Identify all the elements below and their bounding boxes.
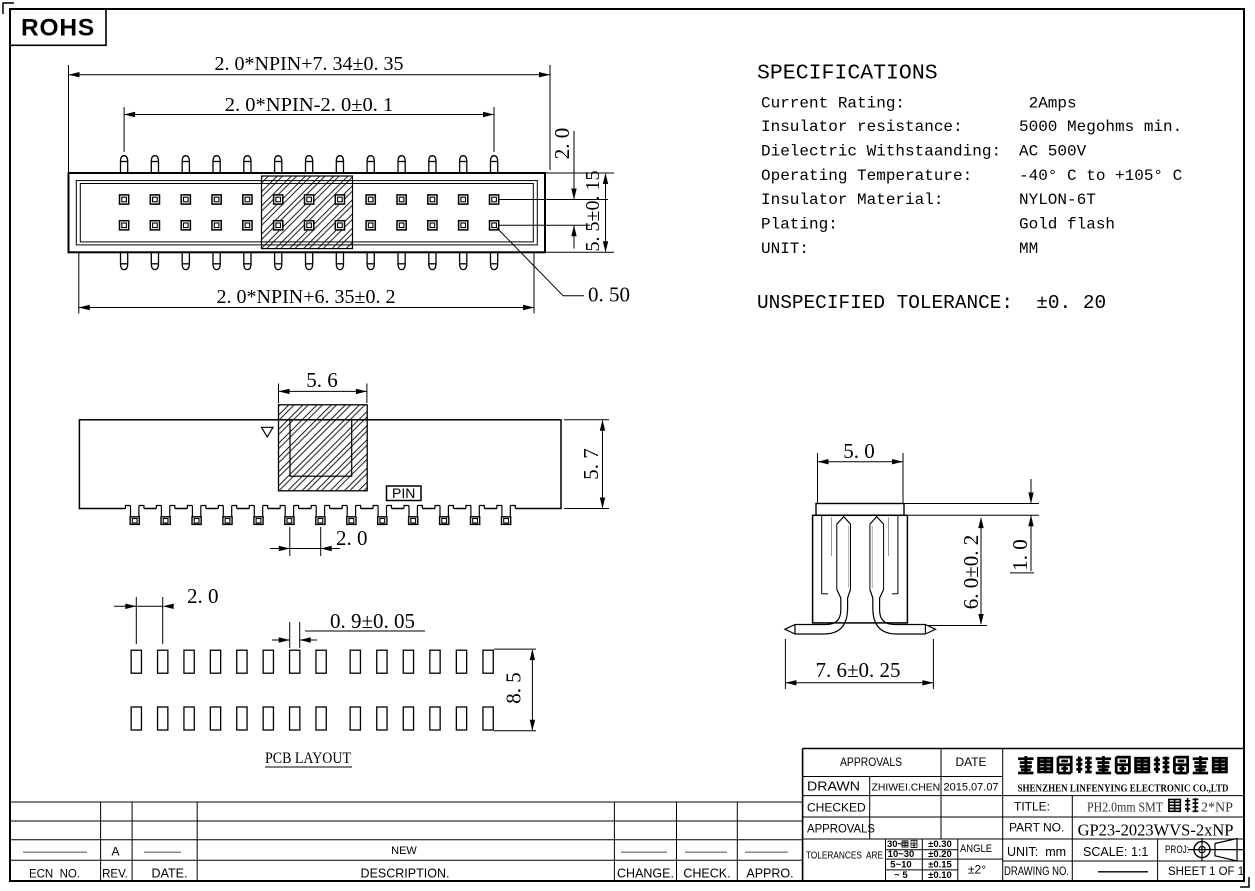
svg-text:1. 0: 1. 0 [1008,539,1032,571]
svg-text:5000 Megohms min.: 5000 Megohms min. [1019,118,1182,136]
svg-text:DATE.: DATE. [152,867,188,881]
svg-text:Dielectric Withstaanding:: Dielectric Withstaanding: [761,142,1001,160]
svg-text:6. 0±0. 2: 6. 0±0. 2 [959,535,983,610]
svg-text:DATE: DATE [955,755,986,769]
svg-text:5. 5±0. 15: 5. 5±0. 15 [582,171,604,252]
svg-text:CHANGE.: CHANGE. [617,867,674,881]
svg-text:5. 6: 5. 6 [306,368,338,392]
svg-text:CHECKED: CHECKED [807,801,866,815]
svg-text:2. 0: 2. 0 [336,526,368,550]
svg-text:-40° C to +105° C: -40° C to +105° C [1019,167,1182,185]
svg-text:ANGLE: ANGLE [960,843,992,855]
svg-text:GP23-2023WVS-2xNP: GP23-2023WVS-2xNP [1078,821,1234,840]
svg-text:0. 50: 0. 50 [588,283,630,307]
svg-text:±0.10: ±0.10 [928,870,952,881]
svg-text:NEW: NEW [391,845,417,857]
svg-text:TITLE:: TITLE: [1014,800,1050,814]
svg-text:APPROVALS: APPROVALS [807,822,875,836]
svg-text:Gold flash: Gold flash [1019,216,1115,234]
svg-text:2. 0*NPIN-2. 0±0. 1: 2. 0*NPIN-2. 0±0. 1 [225,94,393,116]
svg-text:ZHIWEI.CHEN: ZHIWEI.CHEN [872,783,941,794]
svg-text:2*NP: 2*NP [1201,801,1233,816]
svg-text:APPROVALS: APPROVALS [840,755,902,769]
svg-text:5~10: 5~10 [890,860,911,871]
svg-text:5. 0: 5. 0 [843,439,875,463]
svg-text:8. 5: 8. 5 [502,672,526,704]
svg-text:10~30: 10~30 [888,849,915,860]
svg-text:1 OF 1: 1 OF 1 [1209,866,1244,878]
svg-text:Insulator resistance:: Insulator resistance: [761,118,963,136]
svg-text:~ 5: ~ 5 [894,870,908,881]
svg-text:UNIT: mm: UNIT: mm [1007,845,1066,859]
svg-text:SHENZHEN LINFENYING ELECTRONIC: SHENZHEN LINFENYING ELECTRONIC CO.,LTD [1018,783,1229,795]
svg-text:2. 0*NPIN+7. 34±0. 35: 2. 0*NPIN+7. 34±0. 35 [215,53,404,75]
svg-text:2015.07.07: 2015.07.07 [944,782,999,794]
svg-text:PROJ:: PROJ: [1165,844,1189,856]
svg-text:ECN NO.: ECN NO. [29,869,80,881]
svg-text:±0.15: ±0.15 [928,860,952,871]
svg-text:AC 500V: AC 500V [1019,142,1087,160]
svg-text:DRAWING NO.: DRAWING NO. [1004,864,1069,878]
svg-text:1:1: 1:1 [1131,845,1148,859]
svg-text:SPECIFICATIONS: SPECIFICATIONS [757,62,938,86]
svg-text:PIN: PIN [392,485,415,501]
svg-text:0. 9±0. 05: 0. 9±0. 05 [330,609,415,633]
svg-text:SHEET: SHEET [1168,866,1206,878]
svg-text:2. 0*NPIN+6. 35±0. 2: 2. 0*NPIN+6. 35±0. 2 [217,286,396,308]
svg-text:NYLON-6T: NYLON-6T [1019,191,1096,209]
svg-text:DESCRIPTION.: DESCRIPTION. [361,867,450,881]
svg-text:5. 7: 5. 7 [579,448,603,480]
svg-text:2Amps: 2Amps [1019,95,1077,113]
svg-text:UNIT:: UNIT: [761,240,809,258]
svg-text:Insulator Material:: Insulator Material: [761,191,943,209]
svg-text:A: A [111,845,119,859]
svg-text:PCB LAYOUT: PCB LAYOUT [265,750,351,767]
svg-text:Operating Temperature:: Operating Temperature: [761,167,972,185]
svg-text:7. 6±0. 25: 7. 6±0. 25 [815,658,900,682]
svg-text:Current Rating:: Current Rating: [761,95,905,113]
svg-text:MM: MM [1019,240,1038,258]
svg-text:2. 0: 2. 0 [550,128,574,160]
svg-text:2. 0: 2. 0 [187,584,219,608]
svg-text:UNSPECIFIED TOLERANCE: ±0. 20: UNSPECIFIED TOLERANCE: ±0. 20 [757,292,1106,314]
svg-text:CHECK.: CHECK. [683,867,730,881]
svg-text:DRAWN: DRAWN [807,779,860,794]
svg-text:PART NO.: PART NO. [1009,821,1064,835]
svg-text:ROHS: ROHS [21,15,95,42]
svg-text:TOLERANCES ARE: TOLERANCES ARE [806,851,883,862]
svg-text:±2°: ±2° [968,863,986,877]
svg-text:Plating:: Plating: [761,216,838,234]
svg-text:REV.: REV. [102,869,128,881]
svg-text:PH2.0mm SMT: PH2.0mm SMT [1087,800,1164,815]
svg-text:SCALE:: SCALE: [1083,845,1127,859]
svg-text:APPRO.: APPRO. [746,867,793,881]
svg-text:±0.20: ±0.20 [928,849,952,860]
